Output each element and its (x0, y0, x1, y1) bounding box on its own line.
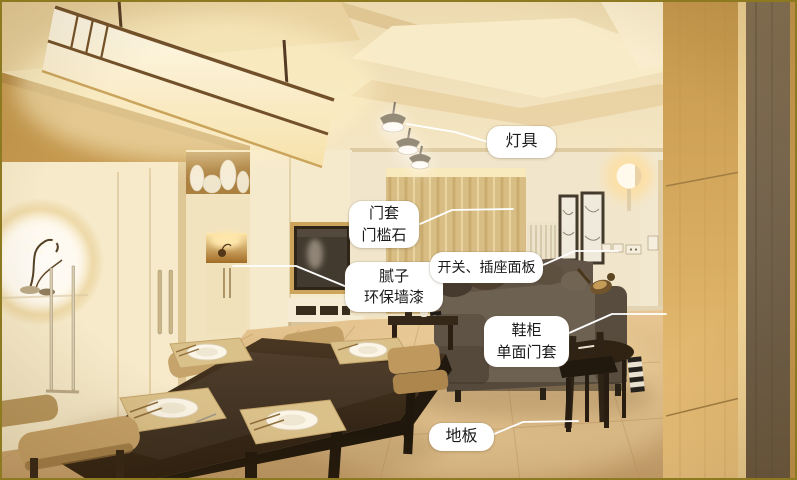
annotation-text: 开关、插座面板 (438, 258, 536, 278)
annotation-label-wall-putty: 腻子 环保墙漆 (345, 262, 443, 312)
annotation-label-switch-socket: 开关、插座面板 (430, 252, 543, 283)
annotated-room-photo: 灯具 门套 门槛石 腻子 环保墙漆 开关、插座面板 鞋柜 单面门套 地板 (0, 0, 797, 480)
annotation-text: 门套 (369, 203, 399, 224)
annotation-text: 单面门套 (496, 342, 556, 363)
annotation-text: 地板 (445, 426, 477, 449)
annotation-text: 腻子 (379, 266, 409, 287)
annotation-label-door-frame: 门套 门槛石 (349, 201, 419, 248)
annotation-text: 环保墙漆 (364, 287, 424, 308)
annotation-text: 灯具 (505, 131, 537, 154)
annotation-label-shoe-cabinet: 鞋柜 单面门套 (484, 316, 569, 367)
annotation-text: 鞋柜 (511, 320, 541, 341)
annotation-label-floor: 地板 (429, 423, 494, 451)
annotation-label-lighting: 灯具 (487, 126, 556, 158)
annotation-text: 门槛石 (361, 225, 406, 246)
